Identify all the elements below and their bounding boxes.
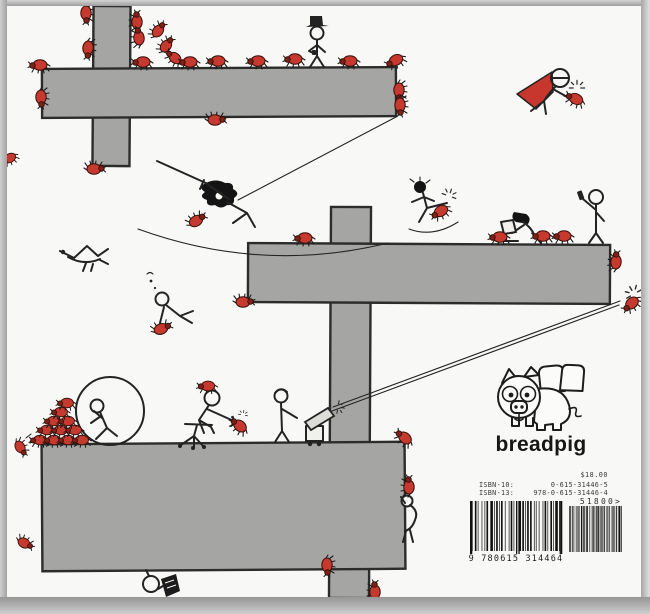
isbn13-line: ISBN-13: 978-0-615-31446-4 bbox=[479, 489, 608, 497]
impact-burst-icon bbox=[623, 283, 642, 299]
photo-edge-right bbox=[641, 0, 650, 614]
bug-icon bbox=[226, 414, 251, 438]
barcode-guard-bar bbox=[560, 501, 561, 560]
barcode-bar bbox=[619, 506, 620, 552]
barcode-bar bbox=[547, 501, 548, 551]
photo-edge-top bbox=[0, 0, 650, 6]
barcode-guard-bar bbox=[516, 501, 517, 560]
barcode-bar bbox=[581, 506, 582, 552]
barcode-bar bbox=[553, 501, 554, 551]
barcode-bar bbox=[613, 506, 614, 552]
barcode-bar bbox=[569, 506, 570, 552]
barcode-guard-bar bbox=[518, 501, 519, 560]
figure-hat-man bbox=[306, 16, 329, 67]
barcode-bar bbox=[509, 501, 510, 551]
barcode-bar bbox=[609, 506, 610, 552]
barcode-bar bbox=[496, 501, 498, 551]
barcode-bar bbox=[485, 501, 486, 551]
isbn13-label: ISBN-13: bbox=[479, 489, 514, 497]
bug-icon bbox=[562, 89, 588, 110]
barcode-bar bbox=[550, 501, 552, 551]
barcode-bar bbox=[587, 506, 588, 552]
barcode-guard-bar bbox=[561, 501, 562, 560]
barcode-bar bbox=[486, 501, 488, 551]
bug-icon bbox=[146, 17, 169, 41]
barcode-bar bbox=[579, 506, 580, 552]
isbn10-label: ISBN-10: bbox=[479, 481, 514, 489]
barcode-bar bbox=[478, 501, 479, 551]
barcode-bar bbox=[576, 506, 577, 552]
impact-burst-icon bbox=[238, 409, 248, 415]
barcode-bar bbox=[534, 501, 535, 551]
barcode-bar bbox=[589, 506, 590, 552]
barcode-bar bbox=[530, 501, 532, 551]
barcode-bar bbox=[597, 506, 598, 552]
bug-icon bbox=[183, 208, 209, 230]
barcode-bar bbox=[539, 501, 540, 551]
figure-phone-man bbox=[577, 190, 604, 243]
barcode-bar bbox=[593, 506, 594, 552]
bug-icon bbox=[81, 3, 94, 25]
impact-burst-icon bbox=[442, 187, 458, 199]
barcode-bar bbox=[555, 501, 558, 551]
barcode-bar bbox=[584, 506, 585, 552]
barcode-bar bbox=[527, 501, 529, 551]
barcode-bar bbox=[612, 506, 613, 552]
platform-middle-deck bbox=[248, 243, 610, 304]
bug-icon bbox=[11, 436, 31, 459]
barcode-bar bbox=[583, 506, 584, 552]
barcode-digits: 9 780615 314464 bbox=[467, 554, 565, 564]
barcode-bar bbox=[525, 501, 526, 551]
barcode-bar bbox=[499, 501, 500, 551]
figure-flying-bird bbox=[60, 246, 108, 271]
bug-icon bbox=[552, 231, 574, 244]
isbn10-line: ISBN-10: 0-615-31446-5 bbox=[479, 481, 608, 489]
figure-caped-hero bbox=[517, 69, 569, 114]
barcode-bar bbox=[475, 501, 477, 551]
photo-edge-left bbox=[0, 0, 7, 614]
figure-book-reader bbox=[143, 570, 180, 597]
platform-lower-deck bbox=[42, 442, 406, 572]
barcode-bar bbox=[592, 506, 593, 552]
barcode-bar bbox=[501, 501, 503, 551]
barcode-bar bbox=[545, 501, 547, 551]
barcode-bar bbox=[536, 501, 537, 551]
photo-edge-bottom bbox=[0, 597, 650, 614]
barcode-guard-bar bbox=[471, 501, 472, 560]
bug-icon bbox=[130, 26, 145, 49]
figure-cannon-crew bbox=[275, 389, 335, 446]
kick-arc bbox=[409, 222, 458, 232]
barcode-bar bbox=[595, 506, 596, 552]
bug-icon bbox=[14, 532, 37, 552]
barcode-bar bbox=[603, 506, 604, 552]
figure-chair-jouster bbox=[178, 391, 236, 451]
barcode-bar bbox=[572, 506, 573, 552]
book-back-cover-photo: breadpig $18.00 ISBN-10: 0-615-31446-5 I… bbox=[0, 0, 650, 614]
platform-upper-deck bbox=[42, 67, 396, 118]
barcode-bar bbox=[616, 506, 617, 552]
barcode-bar bbox=[614, 506, 615, 552]
barcode-bar bbox=[621, 506, 622, 552]
barcode-bar bbox=[601, 506, 602, 552]
figure-falling-puncher bbox=[147, 273, 193, 324]
barcode-bar bbox=[570, 506, 571, 552]
breadpig-wordmark: breadpig bbox=[474, 433, 608, 457]
figure-hamster-ball-runner bbox=[76, 377, 144, 445]
barcode-bar bbox=[494, 501, 495, 551]
barcode-bar bbox=[600, 506, 601, 552]
barcode-bar bbox=[596, 506, 597, 552]
barcode-bar bbox=[586, 506, 587, 552]
barcode-bar bbox=[607, 506, 608, 552]
barcode-bar bbox=[482, 501, 483, 551]
price-label: $18.00 bbox=[479, 471, 608, 479]
isbn10-value: 0-615-31446-5 bbox=[551, 481, 608, 489]
barcode-bar bbox=[522, 501, 524, 551]
barcode-bar bbox=[543, 501, 544, 551]
barcode-bar bbox=[490, 501, 493, 551]
barcode-bar bbox=[604, 506, 605, 552]
barcode-bar bbox=[608, 506, 609, 552]
breadpig-logo bbox=[489, 363, 593, 431]
barcode-bar bbox=[514, 501, 515, 551]
barcode-bar bbox=[578, 506, 579, 552]
impact-burst-icon bbox=[569, 80, 584, 88]
isbn13-value: 978-0-615-31446-4 bbox=[533, 489, 608, 497]
barcode-bar bbox=[505, 501, 506, 551]
supplement-barcode bbox=[569, 506, 623, 556]
barcode-bar bbox=[618, 506, 619, 552]
bug-icon bbox=[283, 54, 305, 67]
barcode-bar bbox=[574, 506, 575, 552]
barcode-bar bbox=[511, 501, 513, 551]
